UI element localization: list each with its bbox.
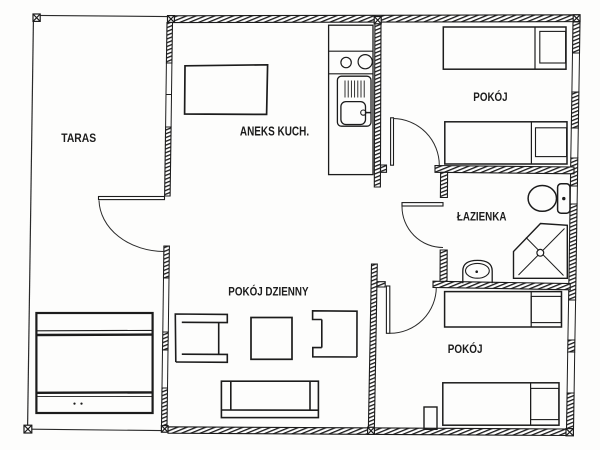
svg-text:ŁAZIENKA: ŁAZIENKA [457, 210, 507, 224]
svg-text:POKÓJ: POKÓJ [473, 91, 507, 104]
svg-text:ANEKS KUCH.: ANEKS KUCH. [240, 124, 309, 139]
svg-text:TARAS: TARAS [61, 132, 96, 145]
svg-text:POKÓJ DZIENNY: POKÓJ DZIENNY [228, 286, 308, 299]
svg-text:POKÓJ: POKÓJ [448, 342, 483, 356]
